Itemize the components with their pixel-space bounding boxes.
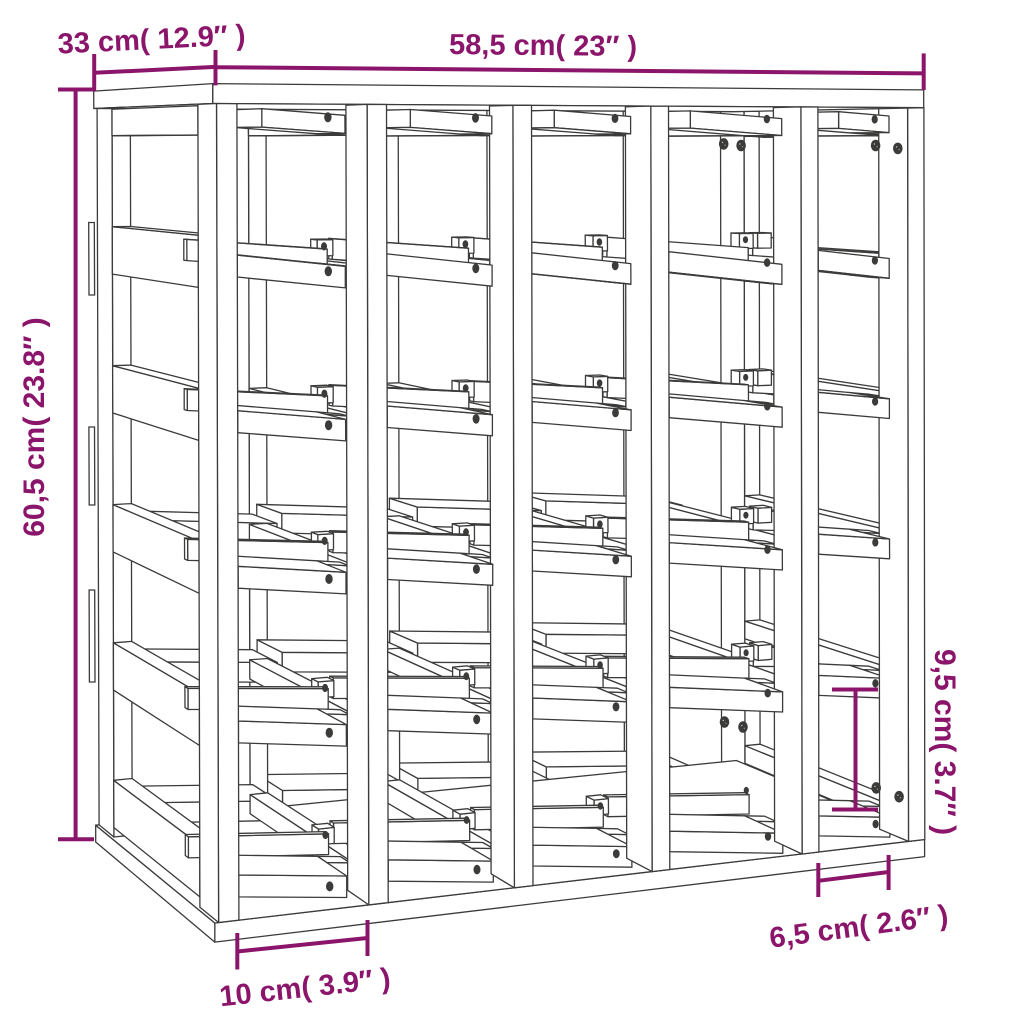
svg-text:58,5 cm( 23″ ): 58,5 cm( 23″ ) (449, 29, 637, 63)
svg-text:60,5 cm( 23.8″ ): 60,5 cm( 23.8″ ) (18, 317, 51, 537)
svg-text:9,5 cm( 3.7″ ): 9,5 cm( 3.7″ ) (928, 649, 961, 835)
